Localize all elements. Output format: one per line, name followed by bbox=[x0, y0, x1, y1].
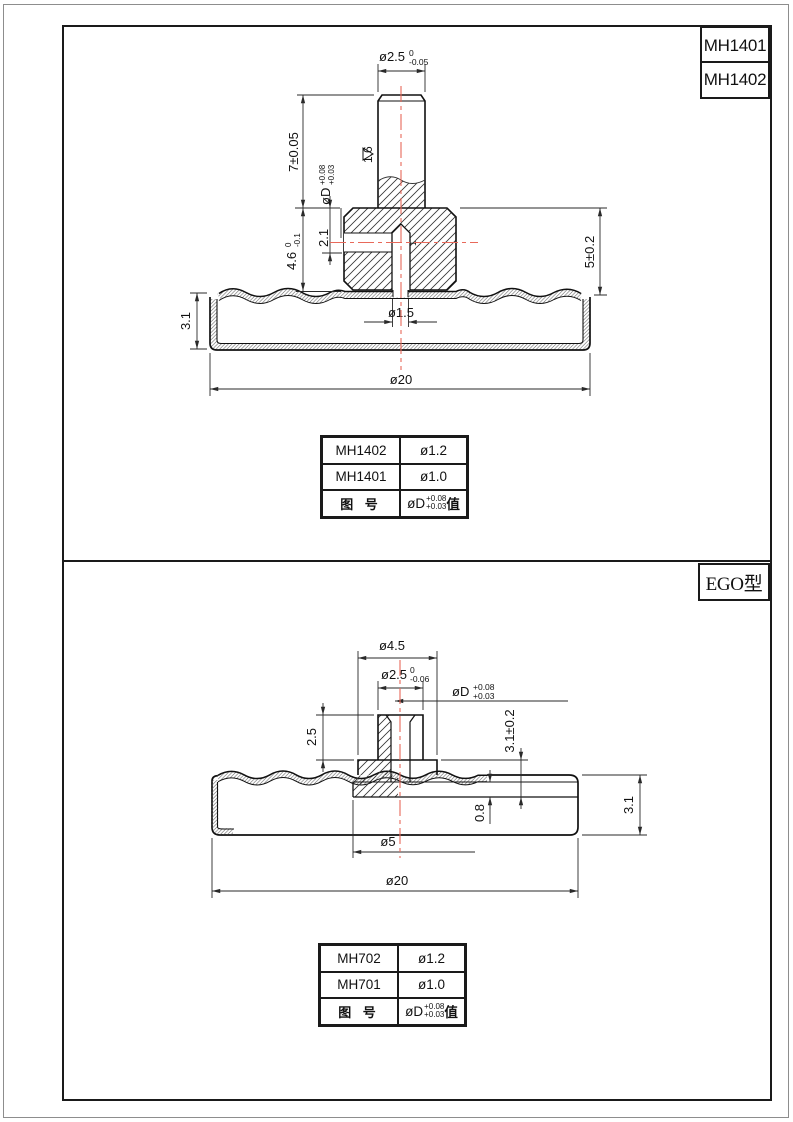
value-suffix: 值 bbox=[444, 1001, 458, 1021]
top-dim-body-height: 4.6 0 -0.1 bbox=[284, 208, 341, 292]
top-dim-stud-dia: ø2.5 0 -0.05 bbox=[378, 48, 429, 92]
top-hex-body bbox=[344, 208, 456, 298]
bottom-dim-bore-dia: øD +0.08 +0.03 bbox=[395, 682, 568, 701]
top-drawing: ø2.5 0 -0.05 7±0.05 4.6 0 -0.1 bbox=[178, 48, 607, 396]
footer-label: 图 号 bbox=[340, 494, 382, 513]
tol-dn: +0.03 bbox=[426, 503, 446, 511]
dim-label: ø20 bbox=[386, 873, 408, 888]
top-spec-table: MH1402 ø1.2 MH1401 ø1.0 图 号 øD+0.08+0.03… bbox=[320, 435, 469, 519]
dim-label: ø2.5 bbox=[379, 49, 405, 64]
footer-label: 图 号 bbox=[338, 1002, 380, 1021]
dim-tol-dn: -0.1 bbox=[293, 233, 302, 247]
table-cell-dia: ø1.0 bbox=[400, 464, 467, 491]
value-suffix: 值 bbox=[446, 493, 460, 513]
table-cell-dia: ø1.0 bbox=[398, 972, 465, 999]
dia-value: ø1.2 bbox=[418, 951, 445, 966]
dim-label: øD bbox=[452, 684, 469, 699]
table-cell-dia: ø1.2 bbox=[400, 437, 467, 464]
model-value: MH701 bbox=[337, 977, 381, 992]
dim-label: 5±0.2 bbox=[582, 236, 597, 268]
top-dim-cap-height: 3.1 bbox=[178, 293, 207, 349]
table-footer-value: øD+0.08+0.03值 bbox=[398, 998, 465, 1025]
table-footer-value: øD+0.08+0.03值 bbox=[400, 490, 467, 517]
top-dim-total-height: 5±0.2 bbox=[460, 208, 607, 295]
dim-tol-up: +0.08 bbox=[318, 164, 327, 185]
table-footer-label: 图 号 bbox=[320, 998, 398, 1025]
dim-label: 2.5 bbox=[304, 728, 319, 746]
dim-label: 0.8 bbox=[472, 804, 487, 822]
model-value: MH1402 bbox=[335, 443, 386, 458]
dim-label: ø4.5 bbox=[379, 638, 405, 653]
dim-label: 7±0.05 bbox=[286, 132, 301, 172]
top-dim-outer-dia: ø20 bbox=[210, 353, 590, 396]
top-dim-hole-position: 2.1 bbox=[316, 196, 342, 265]
bottom-dim-cap-height: 3.1 bbox=[582, 775, 647, 835]
dim-label: 3.1 bbox=[178, 312, 193, 330]
bottom-drawing: ø4.5 ø2.5 0 -0.06 øD +0.08 +0.03 2.5 bbox=[212, 638, 647, 898]
model-value: MH702 bbox=[337, 951, 381, 966]
dim-label: 2.1 bbox=[316, 229, 331, 247]
table-cell-model: MH1401 bbox=[322, 464, 400, 491]
bottom-dim-flange-dia: ø4.5 bbox=[358, 638, 437, 755]
table-footer-label: 图 号 bbox=[322, 490, 400, 517]
model-number-label: MH1401 bbox=[704, 36, 766, 56]
tol-dn: +0.03 bbox=[424, 1011, 444, 1019]
bore-value-with-tolerance: øD+0.08+0.03值 bbox=[407, 493, 460, 513]
model-value: MH1401 bbox=[335, 469, 386, 484]
table-cell-model: MH1402 bbox=[322, 437, 400, 464]
bottom-dim-boss-dia: ø2.5 0 -0.06 bbox=[378, 665, 430, 710]
dim-tol-dn: +0.03 bbox=[327, 164, 336, 185]
drawing-sheet: ø2.5 0 -0.05 7±0.05 4.6 0 -0.1 bbox=[0, 0, 793, 1122]
dim-label: ø2.5 bbox=[381, 667, 407, 682]
dim-label: øD bbox=[318, 188, 333, 205]
dim-label: 3.1 bbox=[621, 796, 636, 814]
dia-value: ø1.0 bbox=[418, 977, 445, 992]
dim-tol-up: 0 bbox=[284, 242, 293, 247]
bottom-threaded-bushing bbox=[358, 715, 437, 782]
top-surface-finish: 1.6 bbox=[361, 146, 375, 163]
dia-value: ø1.0 bbox=[420, 469, 447, 484]
dim-label: ø20 bbox=[390, 372, 412, 387]
top-dim-bore-depth: 1 bbox=[408, 241, 419, 246]
dim-tol-dn: +0.03 bbox=[473, 691, 495, 701]
dim-label: 4.6 bbox=[284, 252, 299, 270]
title-block-model-1: MH1401 bbox=[700, 26, 770, 65]
table-cell-model: MH702 bbox=[320, 945, 398, 972]
type-label: EGO型 bbox=[706, 569, 763, 596]
table-cell-dia: ø1.2 bbox=[398, 945, 465, 972]
bore-symbol: øD bbox=[407, 496, 425, 511]
dim-tol-dn: -0.06 bbox=[410, 674, 430, 684]
dia-value: ø1.2 bbox=[420, 443, 447, 458]
bore-value-with-tolerance: øD+0.08+0.03值 bbox=[405, 1001, 458, 1021]
dim-label: 3.1±0.2 bbox=[502, 709, 517, 752]
title-block-model-2: MH1402 bbox=[700, 61, 770, 99]
title-block-type: EGO型 bbox=[698, 563, 770, 601]
dim-label: ø5 bbox=[380, 834, 395, 849]
table-cell-model: MH701 bbox=[320, 972, 398, 999]
dim-label: 1 bbox=[408, 241, 419, 246]
top-dim-bore-dia: øD +0.08 +0.03 bbox=[318, 164, 341, 238]
model-number-label: MH1402 bbox=[704, 70, 766, 90]
dim-tol-dn: -0.05 bbox=[409, 57, 429, 67]
bottom-spec-table: MH702 ø1.2 MH701 ø1.0 图 号 øD+0.08+0.03值 bbox=[318, 943, 467, 1027]
bore-symbol: øD bbox=[405, 1004, 423, 1019]
